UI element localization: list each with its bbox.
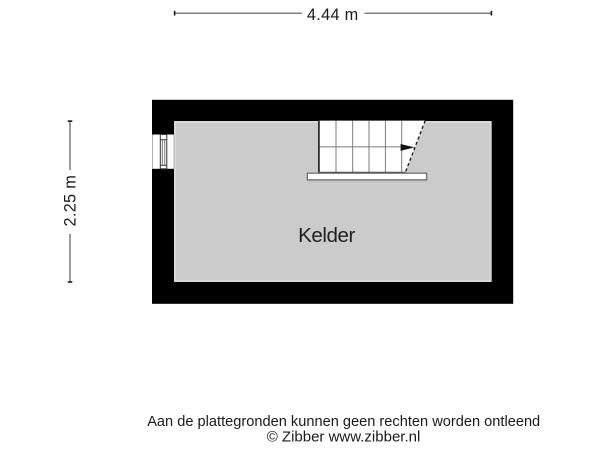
svg-text:Kelder: Kelder (298, 224, 355, 247)
svg-text:4.44 m: 4.44 m (307, 6, 359, 24)
svg-text:2.25 m: 2.25 m (62, 175, 80, 227)
svg-text:Aan de plattegronden kunnen ge: Aan de plattegronden kunnen geen rechten… (147, 413, 540, 430)
svg-text:© Zibber www.zibber.nl: © Zibber www.zibber.nl (267, 428, 421, 445)
